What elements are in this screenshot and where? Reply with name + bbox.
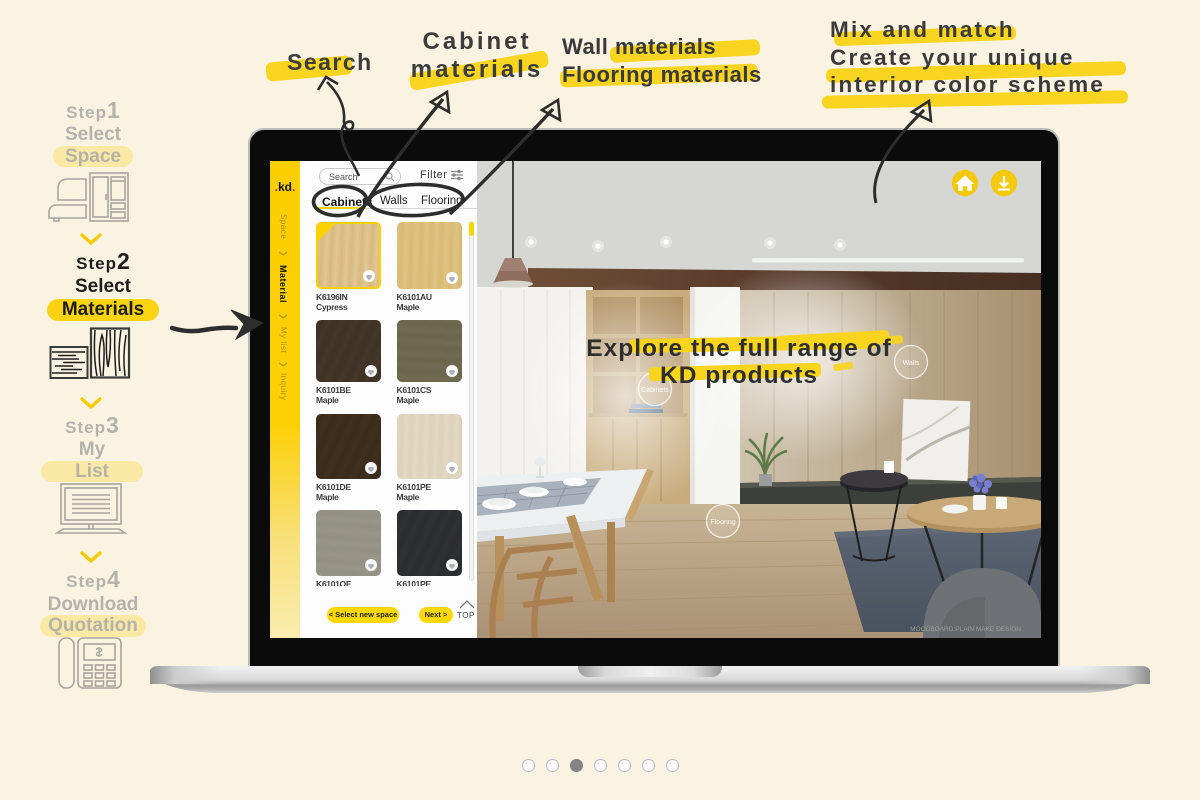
- svg-text:Walls: Walls: [903, 360, 920, 367]
- svg-text:KD products: KD products: [660, 362, 818, 389]
- svg-text:Flooring: Flooring: [710, 519, 735, 526]
- svg-text:Explore the full range of: Explore the full range of: [586, 335, 891, 362]
- svg-text:MOODBOARD:PLAIN MAKE DESIGN: MOODBOARD:PLAIN MAKE DESIGN: [910, 626, 1021, 633]
